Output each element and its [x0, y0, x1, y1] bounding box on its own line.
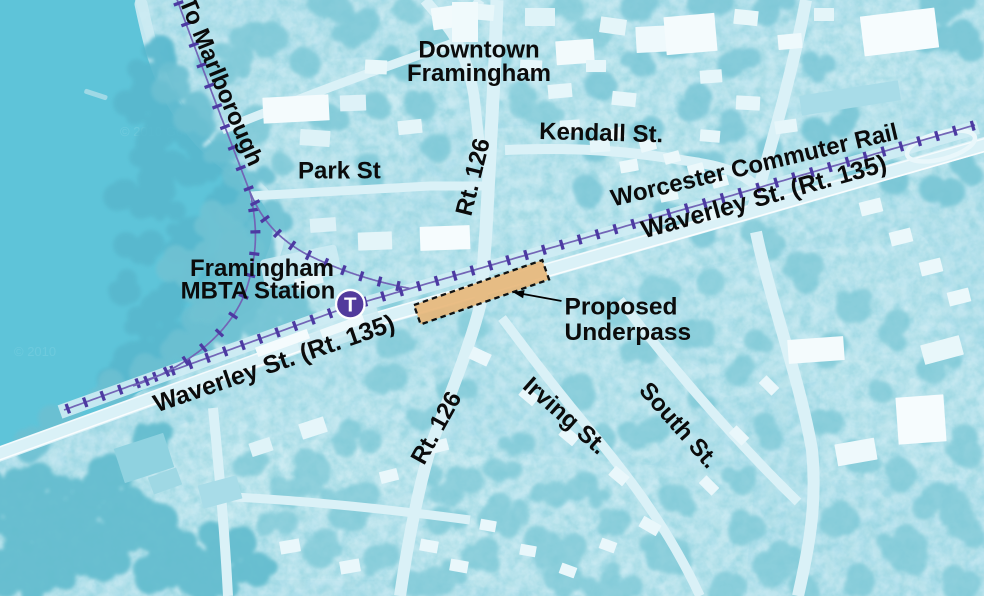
svg-text:Proposed: Proposed: [565, 294, 678, 321]
svg-text:Kendall St.: Kendall St.: [539, 118, 664, 148]
svg-text:© 2010: © 2010: [14, 344, 56, 359]
svg-text:MBTA Station: MBTA Station: [181, 278, 336, 305]
svg-text:T: T: [344, 294, 357, 317]
svg-text:Park St: Park St: [298, 158, 381, 185]
svg-text:Framingham: Framingham: [407, 60, 551, 87]
svg-text:Underpass: Underpass: [565, 319, 692, 346]
